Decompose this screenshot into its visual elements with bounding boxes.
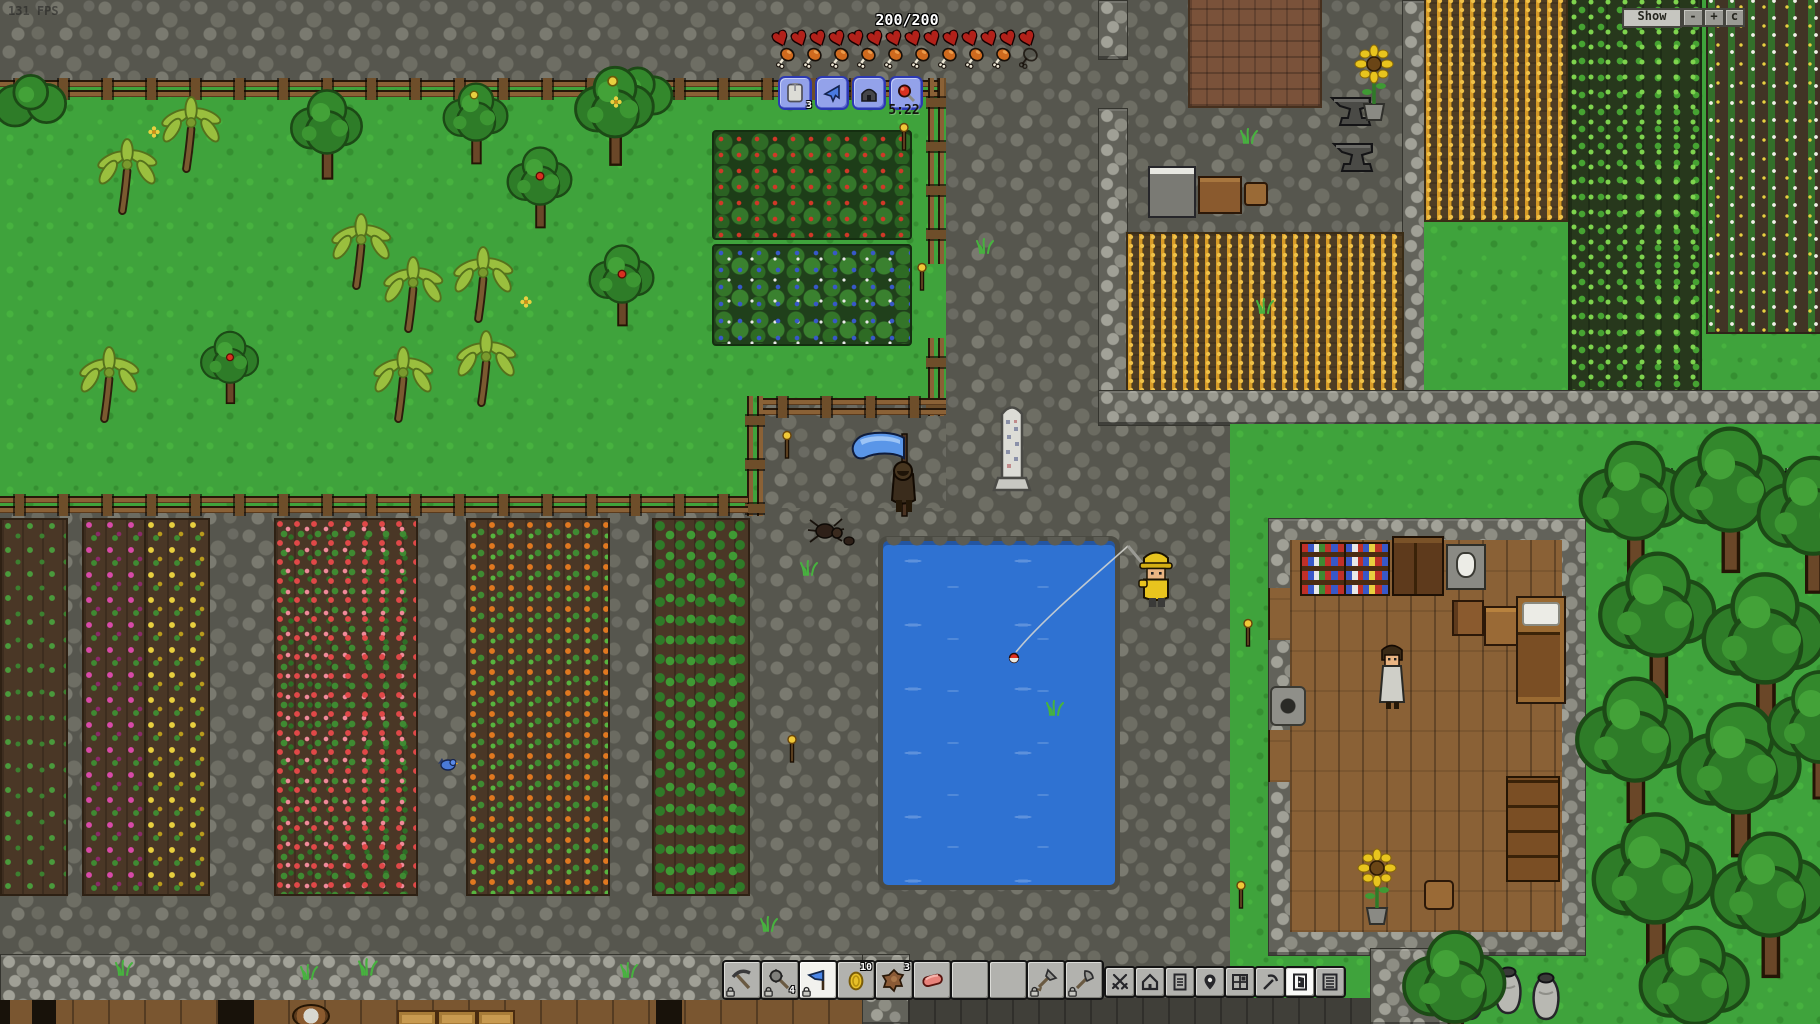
stone-monument xyxy=(990,400,1034,500)
grid-window-icon xyxy=(1230,972,1250,992)
grass-tuft xyxy=(1240,128,1260,144)
house-door-gap[interactable] xyxy=(1268,730,1290,782)
item-count: 3 xyxy=(904,963,910,973)
palm-tree xyxy=(372,338,438,426)
horn-icon xyxy=(821,82,843,104)
drumstick-icon xyxy=(909,46,932,69)
hunger-bar xyxy=(774,46,1040,69)
fruit-tree-apple xyxy=(500,140,580,235)
fps-counter: 131 FPS xyxy=(8,4,59,18)
map-pin-icon xyxy=(1200,972,1220,992)
bed-blanket xyxy=(1518,632,1560,697)
farm-plot-cabbage xyxy=(652,518,750,896)
torch xyxy=(898,122,910,152)
dresser xyxy=(1506,776,1560,882)
cupboard xyxy=(1392,536,1444,596)
grass-tuft xyxy=(115,960,135,976)
document-icon xyxy=(1170,972,1190,992)
menu-inventory-button[interactable] xyxy=(1224,966,1256,998)
item-count: 4 xyxy=(789,986,795,996)
door-frame-pillar xyxy=(32,1000,56,1024)
sunflower-plant xyxy=(1352,40,1396,124)
blueberry-bushes xyxy=(712,244,912,346)
stool xyxy=(1244,182,1268,206)
barrel-top xyxy=(292,1004,330,1024)
minimap-center-button[interactable]: c xyxy=(1724,8,1745,27)
hotbar-slot-10-axe[interactable] xyxy=(1064,960,1104,1000)
raw-meat-icon xyxy=(919,967,945,993)
grass-tuft xyxy=(358,958,380,976)
menu-quests-button[interactable] xyxy=(1164,966,1196,998)
lock-icon xyxy=(1067,986,1078,997)
farm-plot-yellow-flowers xyxy=(144,518,210,896)
hunger-empty-group xyxy=(1017,46,1040,69)
hotbar-slot-5-hide[interactable]: 3 xyxy=(874,960,914,1000)
house-door-gap[interactable] xyxy=(1268,588,1290,640)
drumstick-icon xyxy=(828,46,851,69)
orchard-fence-right-upper xyxy=(926,78,946,264)
side-table-jug xyxy=(1446,544,1486,590)
compound-wall-left-upper xyxy=(1098,0,1128,60)
drumstick-icon xyxy=(855,46,878,69)
menu-mining-button[interactable] xyxy=(1254,966,1286,998)
drumstick-icon xyxy=(963,46,986,69)
potted-sunflower xyxy=(1354,844,1400,928)
workstation xyxy=(1148,166,1196,218)
hunger-full-group xyxy=(774,46,1013,69)
list-icon xyxy=(1320,972,1340,992)
drumstick-empty-icon xyxy=(1017,46,1040,69)
yellow-flower xyxy=(520,296,532,308)
home-button[interactable] xyxy=(852,76,886,110)
palm-tree xyxy=(382,248,448,336)
fruit-tree xyxy=(282,82,372,187)
hotbar-slot-3-banner-selected[interactable] xyxy=(798,960,838,1000)
grass-tuft xyxy=(620,962,640,978)
grass-tuft xyxy=(800,560,820,576)
farm-plot-strawberries xyxy=(274,518,418,896)
hotbar-slot-4-coin[interactable]: 10 xyxy=(836,960,876,1000)
minimap-zoom-in-button[interactable]: + xyxy=(1703,8,1725,27)
door-frame-pillar xyxy=(218,1000,254,1024)
torch xyxy=(1235,880,1247,910)
magnifier-icon xyxy=(895,82,917,104)
farm-plot-greens xyxy=(0,518,68,896)
game-viewport: 131 FPS 200/200 ♥ ♥♥♥♥♥♥♥♥♥♥♥♥♥ T 3 5:22… xyxy=(0,0,1820,1024)
menu-map-button[interactable] xyxy=(1194,966,1226,998)
pickaxe-arrow-icon xyxy=(1260,972,1280,992)
forest-tree xyxy=(1620,915,1770,1024)
horn-button[interactable] xyxy=(815,76,849,110)
fruit-tree-gold xyxy=(565,58,665,174)
clay-jug xyxy=(1528,970,1566,1024)
grass-tuft xyxy=(760,916,780,932)
palm-tree xyxy=(78,338,144,426)
white-jug xyxy=(1456,552,1476,578)
wood-table xyxy=(1198,176,1242,214)
journal-button[interactable]: T 3 xyxy=(778,76,812,110)
crate xyxy=(437,1010,477,1024)
crossed-swords-icon xyxy=(1110,972,1130,992)
wheat-field-top xyxy=(1424,0,1568,222)
bookshelf xyxy=(1344,542,1390,596)
chair xyxy=(1452,600,1484,636)
home-icon xyxy=(858,82,880,104)
forest-tree xyxy=(1760,660,1820,810)
house-icon xyxy=(1140,972,1160,992)
health-label: 200/200 xyxy=(772,11,1042,29)
stool xyxy=(1424,880,1454,910)
game-clock: 5:22 xyxy=(882,103,926,118)
apple-bush xyxy=(195,325,265,410)
crate xyxy=(397,1010,437,1024)
grass-tuft xyxy=(976,238,996,254)
menu-settlement-button[interactable] xyxy=(1134,966,1166,998)
drumstick-icon xyxy=(882,46,905,69)
hotbar-slot-7-empty[interactable] xyxy=(950,960,990,1000)
torch xyxy=(916,262,928,292)
compound-wall-right xyxy=(1402,0,1426,394)
yellow-flower xyxy=(148,126,160,138)
drumstick-icon xyxy=(990,46,1013,69)
palm-tree xyxy=(452,238,518,326)
palm-tree xyxy=(96,130,162,218)
door-frame-pillar xyxy=(656,1000,682,1024)
drumstick-icon xyxy=(936,46,959,69)
crate xyxy=(477,1010,515,1024)
hotbar-slot-9-shovel[interactable] xyxy=(1026,960,1066,1000)
lock-icon xyxy=(801,986,812,997)
compound-dirt-patch xyxy=(1188,0,1322,108)
bush xyxy=(0,64,78,134)
door-frame-pillar xyxy=(0,1000,10,1024)
torch xyxy=(1242,618,1254,648)
grass-tuft xyxy=(300,964,320,980)
orchard-fence-bottom-right xyxy=(763,396,946,418)
fruit-tree-apple xyxy=(582,238,662,333)
journal-badge: 3 xyxy=(806,100,812,111)
hotbar-slot-1-pickaxe[interactable] xyxy=(722,960,762,1000)
banner-knight-npc[interactable] xyxy=(846,428,930,520)
farm-fence-top xyxy=(0,494,748,516)
drumstick-icon xyxy=(801,46,824,69)
palm-tree xyxy=(160,88,226,176)
farm-plot-carrots xyxy=(466,518,610,896)
bed xyxy=(1516,596,1566,704)
drumstick-icon xyxy=(774,46,797,69)
interior-dark-floor xyxy=(908,998,1370,1024)
menu-log-button[interactable] xyxy=(1314,966,1346,998)
bed-pillow xyxy=(1522,602,1560,626)
spider-npc[interactable] xyxy=(806,514,858,548)
journal-glyph: T xyxy=(780,81,810,94)
hotbar-slot-8-empty[interactable] xyxy=(988,960,1028,1000)
torch xyxy=(786,734,798,764)
torch xyxy=(781,430,793,460)
menu-housing-button-active[interactable] xyxy=(1284,966,1316,998)
anvil xyxy=(1330,136,1378,178)
blackberry-bushes xyxy=(712,130,912,240)
grass-tuft xyxy=(1256,298,1276,314)
villager-npc[interactable] xyxy=(1372,642,1412,726)
forest-tree xyxy=(1390,920,1520,1024)
item-count: 10 xyxy=(860,963,872,973)
minimap-show-button[interactable]: Show xyxy=(1622,8,1682,28)
lock-icon xyxy=(1029,986,1040,997)
hotbar-slot-6-meat[interactable] xyxy=(912,960,952,1000)
palm-tree xyxy=(455,322,521,410)
menu-pvp-button[interactable] xyxy=(1104,966,1136,998)
farm-fence-right xyxy=(745,396,765,516)
minimap-zoom-out-button[interactable]: - xyxy=(1682,8,1704,27)
compound-wall-left-lower xyxy=(1098,108,1128,394)
hotbar-slot-2-mace[interactable]: 4 xyxy=(760,960,800,1000)
flowering-field xyxy=(1706,0,1820,334)
stone-well xyxy=(1270,686,1306,726)
bookshelf xyxy=(1300,542,1346,596)
vine-field xyxy=(1568,0,1702,392)
door-icon xyxy=(1290,972,1310,992)
yellow-flower xyxy=(610,96,622,108)
fisherman-npc[interactable] xyxy=(1122,536,1192,616)
blue-bird[interactable] xyxy=(436,756,458,772)
farm-plot-pink-flowers xyxy=(82,518,148,896)
lock-icon xyxy=(725,986,736,997)
grass-tuft xyxy=(1046,700,1066,716)
lock-icon xyxy=(763,986,774,997)
